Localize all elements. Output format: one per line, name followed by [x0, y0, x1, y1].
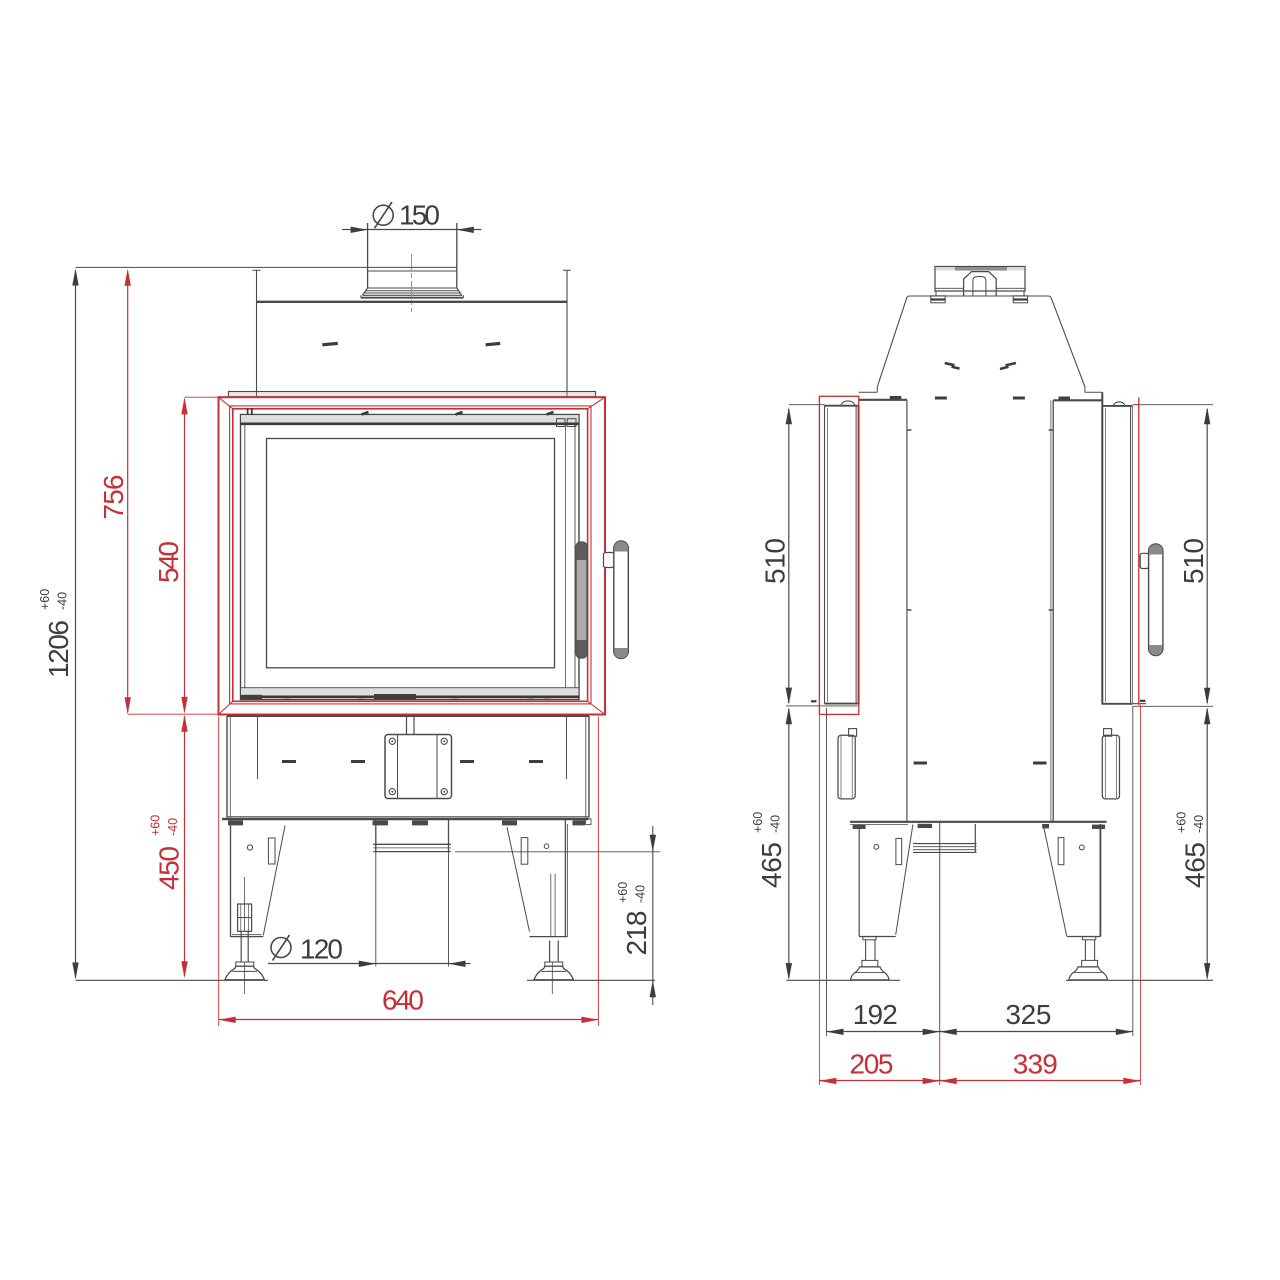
svg-text:+60: +60: [616, 882, 630, 903]
svg-text:+60: +60: [38, 589, 52, 610]
svg-text:339: 339: [1013, 1049, 1058, 1080]
svg-text:640: 640: [382, 985, 424, 1016]
svg-text:+60: +60: [1175, 812, 1189, 833]
svg-text:465: 465: [756, 842, 787, 888]
svg-text:+60: +60: [751, 812, 765, 833]
svg-text:-40: -40: [634, 885, 648, 903]
svg-text:-40: -40: [1192, 815, 1206, 833]
svg-text:+60: +60: [149, 815, 163, 836]
svg-text:510: 510: [1178, 538, 1209, 584]
svg-text:325: 325: [1005, 999, 1051, 1030]
svg-text:-40: -40: [166, 818, 180, 836]
svg-text:-40: -40: [769, 815, 783, 833]
svg-text:450: 450: [154, 846, 185, 890]
svg-text:120: 120: [300, 934, 343, 965]
svg-text:-40: -40: [56, 592, 70, 610]
svg-text:1206: 1206: [43, 620, 74, 678]
svg-text:205: 205: [850, 1049, 894, 1080]
svg-text:756: 756: [98, 475, 129, 520]
svg-text:150: 150: [399, 200, 440, 231]
svg-text:218: 218: [621, 911, 652, 956]
svg-text:510: 510: [760, 538, 791, 584]
svg-text:465: 465: [1180, 842, 1211, 888]
svg-text:192: 192: [853, 999, 898, 1030]
svg-text:540: 540: [153, 541, 184, 583]
